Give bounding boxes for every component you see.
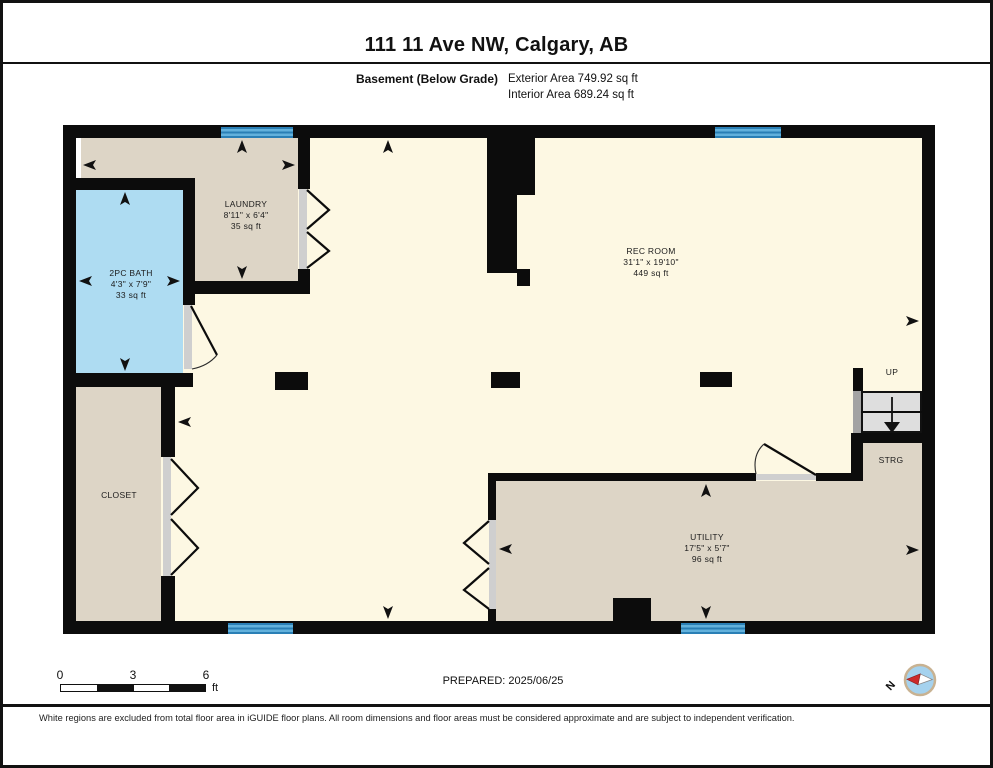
support-post-center [491, 372, 520, 388]
room-name: REC ROOM [581, 246, 721, 257]
window-bottom-left [228, 623, 293, 634]
room-dims: 4'3" x 7'9" [76, 279, 186, 290]
compass-north-label: N [884, 679, 898, 693]
floor-label: Basement (Below Grade) [283, 72, 498, 86]
window-top-right [715, 127, 781, 138]
wall-utility-left-stub [488, 609, 496, 621]
disclaimer-text: White regions are excluded from total fl… [39, 713, 969, 723]
room-area: 35 sq ft [191, 221, 301, 232]
scale-tick-3: 3 [123, 668, 143, 682]
closet-floor [76, 387, 161, 621]
support-post-right [700, 372, 732, 387]
wall-laundry-right-upper [298, 133, 310, 189]
stairs-up-label: UP [862, 367, 922, 378]
room-label-utility: UTILITY 17'5" x 5'7" 96 sq ft [637, 532, 777, 565]
room-name: UP [862, 367, 922, 378]
room-label-bath: 2PC BATH 4'3" x 7'9" 33 sq ft [76, 268, 186, 301]
room-label-laundry: LAUNDRY 8'11" x 6'4" 35 sq ft [191, 199, 301, 232]
room-name: UTILITY [637, 532, 777, 543]
window-top-left [221, 127, 293, 138]
chimney-chase-upper [487, 138, 535, 195]
wall-bath-top [63, 178, 193, 190]
bath-door-opening [184, 305, 192, 369]
wall-closet-right-upper [161, 387, 175, 457]
prepared-date: PREPARED: 2025/06/25 [383, 675, 623, 687]
page-title: 111 11 Ave NW, Calgary, AB [3, 34, 990, 57]
wall-exterior-right [922, 125, 935, 634]
compass-icon [898, 658, 944, 704]
wall-exterior-top [63, 125, 935, 138]
room-dims: 8'11" x 6'4" [191, 210, 301, 221]
room-area: 449 sq ft [581, 268, 721, 279]
furnace-block [613, 598, 651, 621]
floorplan-page: 111 11 Ave NW, Calgary, AB Basement (Bel… [0, 0, 993, 768]
room-area: 33 sq ft [76, 290, 186, 301]
scale-tick-6: 6 [196, 668, 216, 682]
room-label-rec-room: REC ROOM 31'1" x 19'10" 449 sq ft [581, 246, 721, 279]
room-name: STRG [861, 455, 921, 466]
room-dims: 17'5" x 5'7" [637, 543, 777, 554]
chimney-chase-foot [517, 269, 530, 286]
scale-unit: ft [212, 682, 218, 694]
wall-below-stairs [855, 433, 935, 443]
scale-bar [60, 684, 206, 692]
wall-laundry-bottom [185, 281, 310, 294]
closet-door-opening [163, 457, 171, 576]
wall-utility-top-left [488, 473, 756, 481]
room-dims: 31'1" x 19'10" [581, 257, 721, 268]
room-label-closet: CLOSET [69, 490, 169, 501]
wall-utility-left [488, 473, 496, 520]
excluded-strip [76, 138, 81, 180]
scale-segment [169, 685, 205, 691]
header-divider [3, 62, 990, 64]
footer-divider [3, 704, 990, 707]
wall-closet-right-lower [161, 576, 175, 621]
stair-side-strip [853, 391, 861, 433]
wall-bath-bottom [63, 373, 193, 387]
support-post-left [275, 372, 308, 390]
room-name: 2PC BATH [76, 268, 186, 279]
exterior-area: Exterior Area 749.92 sq ft [508, 73, 638, 85]
utility-door-opening [489, 520, 496, 609]
room-area: 96 sq ft [637, 554, 777, 565]
utility-entry-opening [756, 474, 816, 480]
room-name: LAUNDRY [191, 199, 301, 210]
room-name: CLOSET [69, 490, 169, 501]
interior-area: Interior Area 689.24 sq ft [508, 89, 634, 101]
stairs-tread-divider [861, 411, 922, 413]
scale-segment [97, 685, 134, 691]
wall-utility-top-right [816, 473, 855, 481]
window-bottom-right [681, 623, 745, 634]
wall-exterior-bottom [63, 621, 935, 634]
room-label-storage: STRG [861, 455, 921, 466]
chimney-chase-lower [487, 195, 517, 273]
scale-tick-0: 0 [50, 668, 70, 682]
